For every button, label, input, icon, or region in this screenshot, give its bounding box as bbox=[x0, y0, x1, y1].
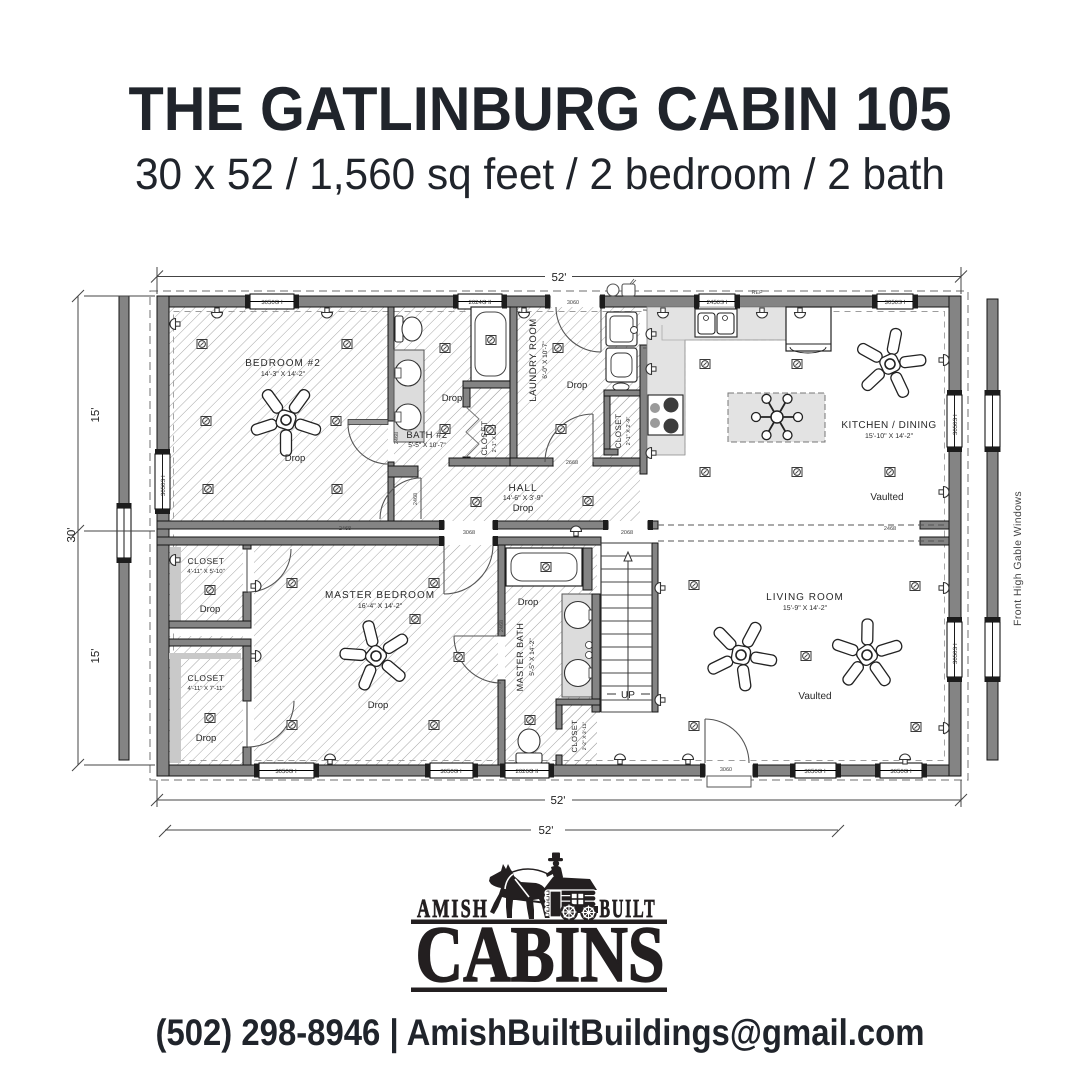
svg-text:4'-11" X 5'-10": 4'-11" X 5'-10" bbox=[187, 568, 224, 575]
svg-text:5'-5" X 14'-2": 5'-5" X 14'-2" bbox=[529, 638, 536, 676]
svg-text:2468: 2468 bbox=[884, 526, 896, 532]
svg-text:LAUNDRY ROOM: LAUNDRY ROOM bbox=[528, 318, 539, 401]
svg-text:2668: 2668 bbox=[566, 460, 578, 466]
svg-text:16'-4" X 14'-2": 16'-4" X 14'-2" bbox=[358, 603, 403, 610]
svg-text:Drop: Drop bbox=[567, 380, 588, 391]
svg-text:3060: 3060 bbox=[720, 767, 732, 773]
svg-text:15': 15' bbox=[90, 649, 102, 664]
svg-text:15'-9" X 14'-2": 15'-9" X 14'-2" bbox=[783, 605, 828, 612]
svg-text:2024G II: 2024G II bbox=[468, 299, 491, 306]
svg-text:Drop: Drop bbox=[368, 700, 389, 711]
svg-text:Drop: Drop bbox=[285, 453, 306, 464]
svg-text:2026G II: 2026G II bbox=[515, 768, 538, 775]
svg-text:14'-3" X 14'-2": 14'-3" X 14'-2" bbox=[261, 371, 306, 378]
svg-text:3050S I: 3050S I bbox=[885, 299, 906, 306]
svg-text:6'-0" X 10'-7": 6'-0" X 10'-7" bbox=[542, 341, 549, 379]
svg-text:3050G I: 3050G I bbox=[275, 768, 297, 775]
svg-text:3068: 3068 bbox=[463, 530, 475, 536]
svg-text:2'-2" X 3'-11": 2'-2" X 3'-11" bbox=[582, 722, 588, 751]
svg-text:3050G I: 3050G I bbox=[890, 768, 912, 775]
svg-text:HALL: HALL bbox=[508, 483, 537, 494]
svg-text:CLOSET: CLOSET bbox=[187, 556, 224, 566]
svg-text:CLOSET: CLOSET bbox=[187, 673, 224, 683]
svg-text:Drop: Drop bbox=[513, 503, 534, 514]
svg-text:15'-10" X 14'-2": 15'-10" X 14'-2" bbox=[865, 433, 914, 440]
svg-text:3050G I: 3050G I bbox=[261, 299, 283, 306]
svg-text:Vaulted: Vaulted bbox=[798, 691, 831, 702]
svg-text:3050G I: 3050G I bbox=[440, 768, 462, 775]
svg-text:3050G I: 3050G I bbox=[804, 768, 826, 775]
svg-text:BEDROOM #2: BEDROOM #2 bbox=[245, 358, 321, 369]
svg-text:Drop: Drop bbox=[200, 604, 221, 615]
svg-text:2468: 2468 bbox=[394, 432, 400, 444]
svg-text:52': 52' bbox=[552, 272, 567, 284]
svg-text:UP: UP bbox=[621, 690, 635, 701]
svg-text:4'-11" X 7'-11": 4'-11" X 7'-11" bbox=[187, 685, 224, 692]
svg-text:2450S I: 2450S I bbox=[707, 299, 728, 306]
svg-text:REF: REF bbox=[752, 290, 764, 296]
svg-text:2468: 2468 bbox=[499, 620, 505, 632]
svg-text:30': 30' bbox=[66, 528, 78, 543]
svg-text:15': 15' bbox=[90, 408, 102, 423]
svg-text:CLOSET: CLOSET bbox=[570, 719, 579, 752]
svg-text:Front High Gable Windows: Front High Gable Windows bbox=[1012, 491, 1024, 626]
svg-text:52': 52' bbox=[539, 825, 554, 837]
svg-text:CLOSET: CLOSET bbox=[614, 413, 623, 448]
svg-text:Vaulted: Vaulted bbox=[870, 492, 903, 503]
svg-text:Drop: Drop bbox=[196, 733, 217, 744]
svg-text:MASTER BEDROOM: MASTER BEDROOM bbox=[325, 590, 435, 601]
svg-text:Drop: Drop bbox=[518, 597, 539, 608]
svg-text:Drop: Drop bbox=[442, 393, 463, 404]
svg-text:THE GATLINBURG CABIN 105: THE GATLINBURG CABIN 105 bbox=[129, 75, 952, 144]
svg-text:2468: 2468 bbox=[339, 526, 351, 532]
svg-text:2068: 2068 bbox=[621, 530, 633, 536]
svg-text:3060: 3060 bbox=[567, 300, 579, 306]
svg-text:14'-6" X 3'-9": 14'-6" X 3'-9" bbox=[503, 495, 544, 502]
svg-text:MASTER BATH: MASTER BATH bbox=[515, 623, 525, 692]
svg-text:3050S I: 3050S I bbox=[952, 643, 959, 664]
svg-text:2'-1" X 2'-9": 2'-1" X 2'-9" bbox=[626, 417, 632, 446]
svg-text:2468: 2468 bbox=[413, 493, 419, 505]
svg-text:CABINS: CABINS bbox=[416, 911, 665, 999]
svg-text:52': 52' bbox=[551, 795, 566, 807]
svg-text:3050S I: 3050S I bbox=[952, 414, 959, 435]
svg-text:(502) 298-8946 | AmishBuiltBui: (502) 298-8946 | AmishBuiltBuildings@gma… bbox=[156, 1012, 925, 1054]
svg-text:5'-5" X 10'-7": 5'-5" X 10'-7" bbox=[408, 442, 446, 449]
svg-text:30 x 52 / 1,560 sq feet / 2 be: 30 x 52 / 1,560 sq feet / 2 bedroom / 2 … bbox=[135, 150, 945, 199]
svg-text:LIVING ROOM: LIVING ROOM bbox=[766, 592, 844, 603]
svg-text:3050S I: 3050S I bbox=[160, 475, 167, 496]
svg-text:KITCHEN / DINING: KITCHEN / DINING bbox=[841, 420, 936, 431]
